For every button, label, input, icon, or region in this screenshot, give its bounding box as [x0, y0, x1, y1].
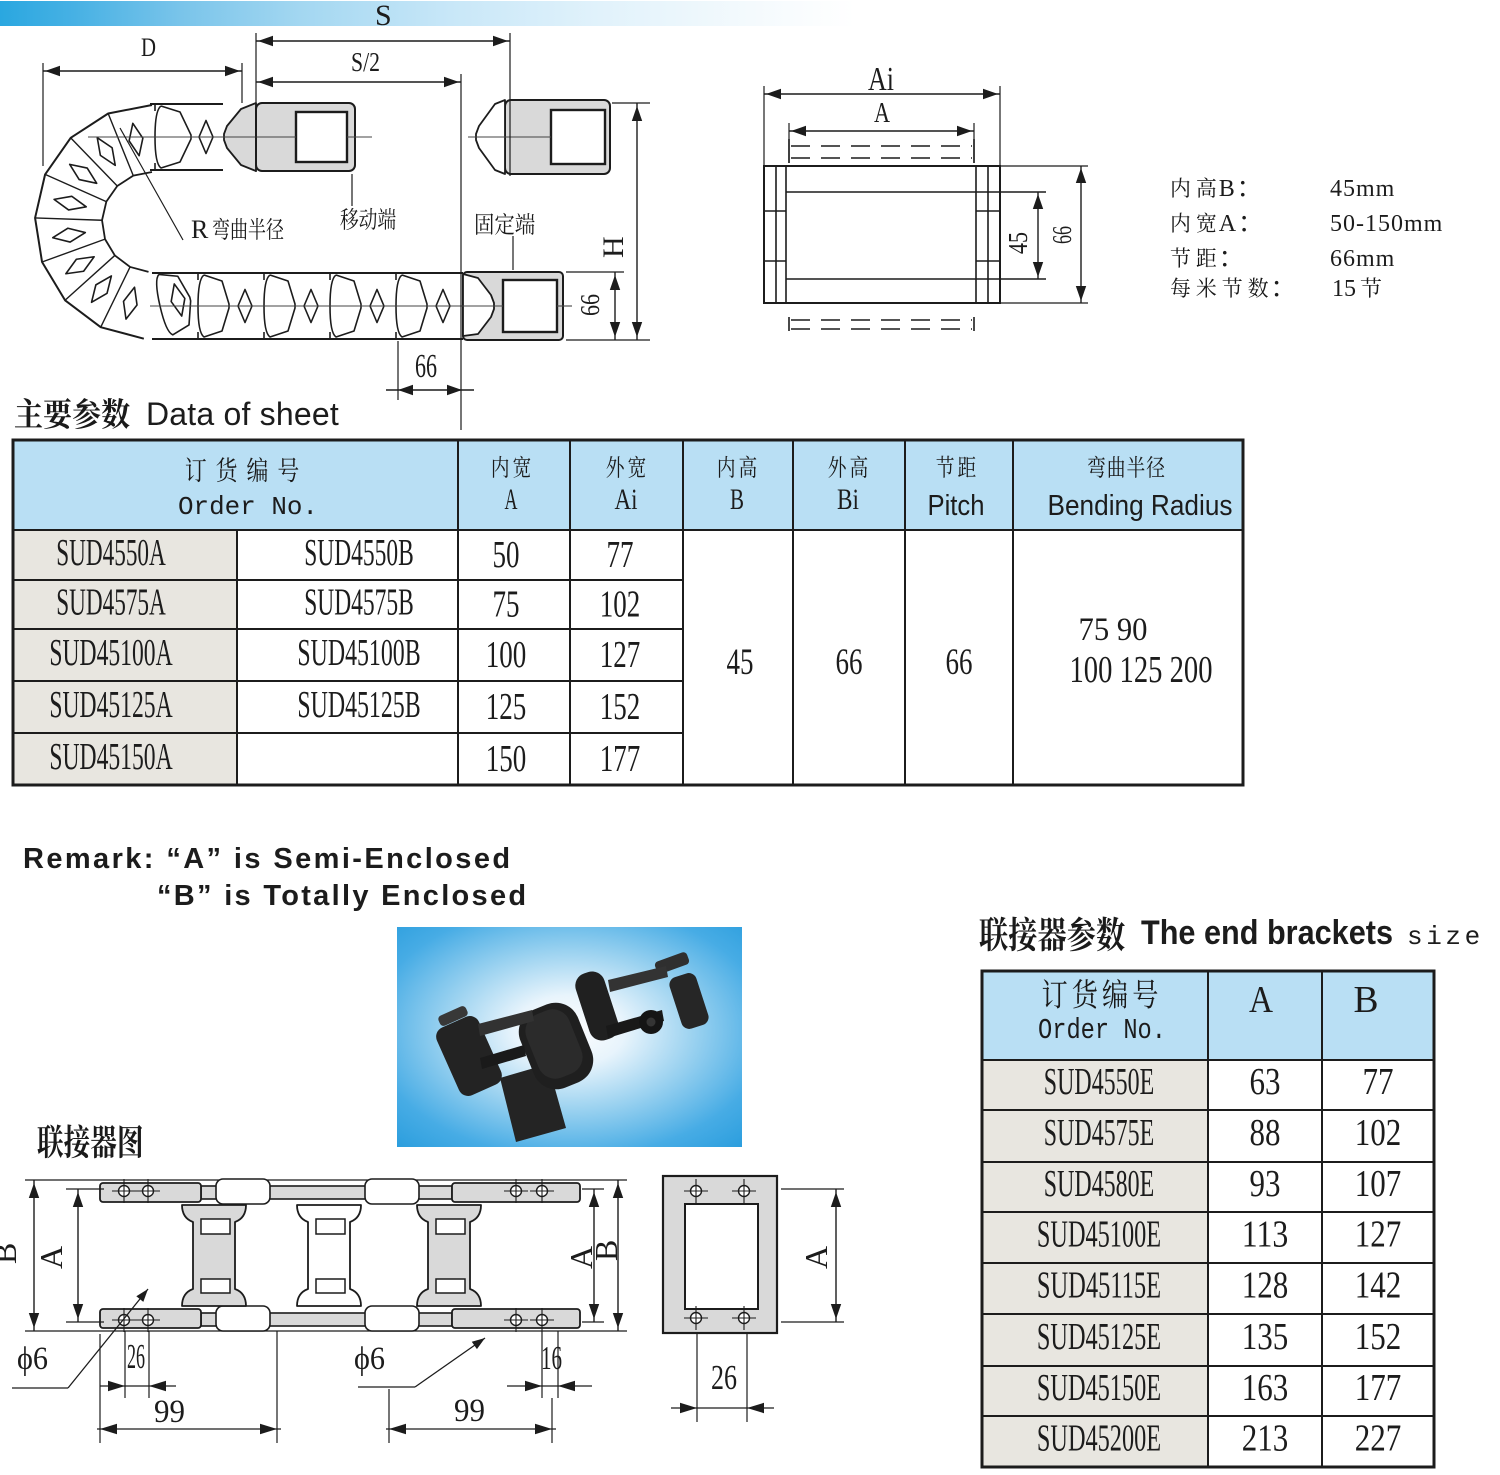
svg-text:66: 66 [946, 642, 973, 683]
svg-text:S/2: S/2 [351, 47, 380, 77]
svg-text:45: 45 [727, 642, 754, 683]
svg-text:SUD45115E: SUD45115E [1037, 1265, 1161, 1307]
svg-text:99: 99 [154, 1394, 185, 1430]
svg-text:66mm: 66mm [1330, 246, 1395, 272]
svg-text:66: 66 [836, 642, 863, 683]
svg-text:A：: A： [1219, 211, 1264, 237]
svg-text:88: 88 [1250, 1112, 1281, 1154]
svg-text:SUD45125E: SUD45125E [1037, 1316, 1161, 1358]
svg-text:66: 66 [415, 348, 437, 385]
svg-text:50-150mm: 50-150mm [1330, 211, 1443, 237]
svg-text:Remark: “A” is Semi-Enclosed: Remark: “A” is Semi-Enclosed [23, 843, 512, 875]
svg-text:16: 16 [541, 1340, 562, 1377]
svg-text:H: H [597, 236, 630, 258]
svg-text:Order No.: Order No. [1038, 1014, 1166, 1047]
svg-text:B：: B： [1219, 176, 1263, 202]
svg-text:152: 152 [600, 686, 641, 728]
svg-text:Ai: Ai [615, 483, 638, 516]
svg-text:“B” is Totally Enclosed: “B” is Totally Enclosed [157, 880, 528, 912]
svg-text:45: 45 [1003, 232, 1033, 254]
svg-text:：: ： [1219, 246, 1245, 272]
svg-text:：: ： [1271, 276, 1297, 302]
svg-text:100: 100 [486, 634, 527, 676]
svg-text:A: A [798, 1246, 834, 1269]
svg-text:ϕ6: ϕ6 [17, 1341, 48, 1377]
svg-text:A: A [33, 1246, 69, 1269]
svg-text:S: S [375, 0, 392, 32]
svg-text:66: 66 [1047, 226, 1077, 244]
svg-text:177: 177 [600, 738, 641, 780]
svg-text:152: 152 [1355, 1316, 1402, 1358]
svg-text:B: B [588, 1240, 624, 1261]
svg-text:SUD4575B: SUD4575B [304, 582, 414, 624]
svg-text:A: A [505, 483, 518, 516]
svg-text:26: 26 [127, 1337, 145, 1376]
svg-text:A: A [1249, 979, 1273, 1021]
svg-text:102: 102 [1355, 1112, 1402, 1154]
svg-text:SUD4580E: SUD4580E [1044, 1163, 1154, 1205]
svg-text:125: 125 [486, 686, 527, 728]
svg-text:ϕ6: ϕ6 [354, 1341, 385, 1377]
svg-text:102: 102 [600, 584, 641, 626]
svg-text:75: 75 [493, 584, 520, 626]
svg-text:113: 113 [1242, 1214, 1289, 1256]
svg-text:127: 127 [1355, 1214, 1402, 1256]
svg-text:B: B [0, 1243, 23, 1264]
svg-text:213: 213 [1242, 1418, 1289, 1460]
svg-text:SUD45100B: SUD45100B [297, 632, 420, 674]
svg-text:SUD4575A: SUD4575A [56, 582, 166, 624]
svg-text:B: B [730, 483, 744, 516]
svg-text:The end brackets: The end brackets [1141, 914, 1393, 952]
svg-text:107: 107 [1355, 1163, 1402, 1205]
svg-text:A: A [874, 97, 890, 129]
svg-text:SUD45125A: SUD45125A [49, 684, 173, 726]
svg-text:26: 26 [711, 1358, 737, 1397]
svg-text:75 90: 75 90 [1079, 612, 1148, 648]
svg-text:Order No.: Order No. [178, 492, 318, 522]
svg-text:128: 128 [1242, 1265, 1289, 1307]
svg-text:227: 227 [1355, 1418, 1402, 1460]
svg-text:Data of sheet: Data of sheet [146, 396, 339, 432]
svg-text:B: B [1354, 979, 1379, 1021]
svg-text:SUD45150A: SUD45150A [49, 736, 173, 778]
svg-text:size: size [1407, 922, 1484, 952]
svg-text:127: 127 [600, 634, 641, 676]
svg-text:77: 77 [1363, 1061, 1394, 1103]
svg-text:66: 66 [575, 294, 605, 316]
svg-text:135: 135 [1242, 1316, 1289, 1358]
svg-text:R: R [191, 215, 209, 244]
svg-text:93: 93 [1250, 1163, 1281, 1205]
svg-text:SUD4550B: SUD4550B [304, 532, 414, 574]
svg-text:Bi: Bi [837, 483, 859, 516]
svg-text:63: 63 [1250, 1061, 1281, 1103]
svg-text:D: D [141, 33, 156, 62]
svg-text:SUD45100A: SUD45100A [49, 632, 173, 674]
svg-text:142: 142 [1355, 1265, 1402, 1307]
svg-text:SUD4575E: SUD4575E [1044, 1112, 1154, 1154]
svg-text:SUD45200E: SUD45200E [1037, 1418, 1161, 1460]
svg-text:SUD45150E: SUD45150E [1037, 1367, 1161, 1409]
svg-text:77: 77 [607, 534, 634, 576]
svg-text:45mm: 45mm [1330, 176, 1395, 202]
svg-text:SUD45125B: SUD45125B [297, 684, 420, 726]
svg-text:15: 15 [1332, 276, 1356, 302]
svg-text:Bending Radius: Bending Radius [1048, 490, 1233, 522]
svg-text:Ai: Ai [868, 61, 894, 98]
svg-text:SUD4550E: SUD4550E [1044, 1061, 1154, 1103]
svg-text:50: 50 [493, 534, 520, 576]
svg-text:Pitch: Pitch [928, 490, 985, 522]
svg-text:99: 99 [454, 1393, 485, 1429]
svg-text:SUD4550A: SUD4550A [56, 532, 166, 574]
svg-text:177: 177 [1355, 1367, 1402, 1409]
svg-text:150: 150 [486, 738, 527, 780]
svg-text:163: 163 [1242, 1367, 1289, 1409]
svg-text:100 125 200: 100 125 200 [1070, 649, 1213, 691]
svg-text:SUD45100E: SUD45100E [1037, 1214, 1161, 1256]
